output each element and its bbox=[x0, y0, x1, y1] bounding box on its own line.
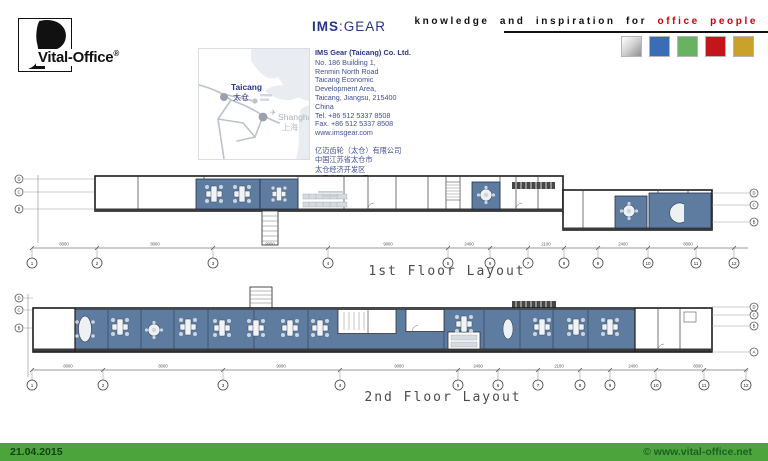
map-landmass bbox=[251, 49, 309, 159]
map-label-taicang: Taicang bbox=[231, 82, 262, 92]
grid-letter: C bbox=[17, 190, 20, 195]
grid-number: 3 bbox=[212, 261, 215, 266]
grid-number: 1 bbox=[31, 383, 34, 388]
dim-text: 9000 bbox=[394, 364, 404, 369]
map-label-taicang-cn: 太仓 bbox=[233, 92, 249, 102]
color-swatch-blue bbox=[649, 36, 670, 57]
registered-mark: ® bbox=[113, 49, 119, 58]
dim-text: 8000 bbox=[693, 364, 703, 369]
floor-plan-2: D C B bbox=[8, 282, 760, 412]
company-name: IMS Gear (Taicang) Co. Ltd. bbox=[315, 49, 435, 58]
ims-gear-logo: IMS:GEAR bbox=[312, 19, 386, 34]
grid-letter: C bbox=[17, 308, 20, 313]
entrance-stair-floor1 bbox=[262, 211, 278, 245]
footer-copyright: © www.vital-office.net bbox=[643, 443, 752, 461]
grid-letter: D bbox=[17, 177, 20, 182]
tagline-black: knowledge and inspiration for bbox=[414, 16, 647, 27]
grid-letter: D bbox=[17, 296, 20, 301]
grid-number: 7 bbox=[537, 383, 540, 388]
ims-logo-bold: IMS bbox=[312, 19, 339, 34]
grid-number: 4 bbox=[339, 383, 342, 388]
grid-number: 5 bbox=[457, 383, 460, 388]
grid-number: 8 bbox=[579, 383, 582, 388]
grid-number: 10 bbox=[645, 261, 651, 266]
color-swatch-silver bbox=[621, 36, 642, 57]
dim-text: 8000 bbox=[150, 242, 160, 247]
grid-number: 2 bbox=[102, 383, 105, 388]
dim-text: 9000 bbox=[383, 242, 393, 247]
dim-text: 8000 bbox=[59, 242, 69, 247]
footer-date: 21.04.2015 bbox=[10, 443, 63, 461]
color-swatch-gold bbox=[733, 36, 754, 57]
location-map: Taicang 太仓 ✈ Shanghai 上海 bbox=[198, 48, 310, 160]
grid-number: 2 bbox=[96, 261, 99, 266]
dim-text: 2100 bbox=[554, 364, 564, 369]
grid-letter: C bbox=[752, 313, 755, 318]
color-swatch-green bbox=[677, 36, 698, 57]
grid-number: 9 bbox=[597, 261, 600, 266]
dim-text: 8000 bbox=[158, 364, 168, 369]
dimension-line-floor2: 8000 8000 9000 9000 2400 2100 2400 8000 bbox=[30, 364, 748, 373]
grid-number: 8 bbox=[563, 261, 566, 266]
grid-number: 7 bbox=[527, 261, 530, 266]
dim-text: 2400 bbox=[464, 242, 474, 247]
grid-letters-left: D C B bbox=[15, 175, 95, 243]
cn-line: 中国江苏省太仓市 bbox=[315, 155, 435, 164]
dim-text: 9000 bbox=[265, 242, 275, 247]
grid-number: 4 bbox=[327, 261, 330, 266]
tagline-red: office people bbox=[658, 16, 758, 27]
page: Vital-Office® IMS:GEAR IMS Gear (Taicang… bbox=[0, 0, 768, 461]
cn-line: 亿迈齿轮（太仓）有限公司 bbox=[315, 146, 435, 155]
grid-bubbles-floor2: 1 2 3 4 5 6 7 8 9 10 11 12 bbox=[27, 370, 751, 390]
dimension-line-floor1: 8000 8000 9000 9000 2400 2100 2400 8000 bbox=[30, 242, 748, 251]
color-swatches bbox=[621, 36, 754, 57]
grid-letter: B bbox=[753, 220, 756, 225]
grid-number: 9 bbox=[609, 383, 612, 388]
grid-letter: A bbox=[753, 350, 756, 355]
address-line-web: www.imsgear.com bbox=[315, 129, 435, 138]
floor1-label: 1st Floor Layout bbox=[368, 264, 525, 279]
grid-letter: B bbox=[18, 326, 21, 331]
grid-letter: B bbox=[753, 324, 756, 329]
grid-letters-left: D C B bbox=[15, 294, 33, 377]
grid-number: 3 bbox=[222, 383, 225, 388]
canopy-floor2 bbox=[512, 301, 556, 308]
stair-tower-floor2 bbox=[250, 287, 272, 308]
grid-letters-right: D C B A bbox=[712, 303, 758, 356]
plane-icon: ✈ bbox=[270, 108, 277, 117]
grid-letter: C bbox=[752, 203, 755, 208]
brand-wordmark: Vital-Office® bbox=[36, 49, 122, 66]
dim-text: 8000 bbox=[683, 242, 693, 247]
brand-name: Vital-Office bbox=[38, 49, 113, 66]
dim-text: 2400 bbox=[473, 364, 483, 369]
port-label-blur bbox=[260, 99, 269, 101]
dim-text: 2400 bbox=[628, 364, 638, 369]
port-dot bbox=[252, 98, 257, 103]
tagline-rule bbox=[504, 31, 768, 33]
grid-number: 12 bbox=[731, 261, 737, 266]
grid-number: 10 bbox=[653, 383, 659, 388]
shanghai-dot bbox=[259, 113, 268, 122]
footer-bar: 21.04.2015 © www.vital-office.net bbox=[0, 443, 768, 461]
dim-text: 2100 bbox=[541, 242, 551, 247]
floor-plan-1: D C B bbox=[8, 165, 760, 285]
grid-letter: D bbox=[752, 305, 755, 310]
grid-number: 12 bbox=[743, 383, 749, 388]
map-label-shanghai-cn: 上海 bbox=[282, 122, 298, 132]
grid-number: 1 bbox=[31, 261, 34, 266]
floor2-label: 2nd Floor Layout bbox=[364, 390, 521, 405]
color-swatch-red bbox=[705, 36, 726, 57]
dim-text: 8000 bbox=[63, 364, 73, 369]
tagline: knowledge and inspiration for office peo… bbox=[414, 16, 758, 27]
dim-text: 9000 bbox=[276, 364, 286, 369]
grid-number: 11 bbox=[694, 261, 699, 266]
map-label-shanghai: Shanghai bbox=[278, 112, 309, 122]
canopy-floor1 bbox=[512, 182, 555, 189]
port-label-blur bbox=[260, 94, 272, 96]
grid-letter: B bbox=[18, 207, 21, 212]
ims-logo-rest: GEAR bbox=[344, 19, 386, 34]
dim-text: 2400 bbox=[618, 242, 628, 247]
grid-number: 11 bbox=[702, 383, 707, 388]
taicang-dot bbox=[220, 93, 228, 101]
grid-letter: D bbox=[752, 191, 755, 196]
grid-letters-right: D C B bbox=[712, 189, 758, 226]
grid-number: 6 bbox=[497, 383, 500, 388]
